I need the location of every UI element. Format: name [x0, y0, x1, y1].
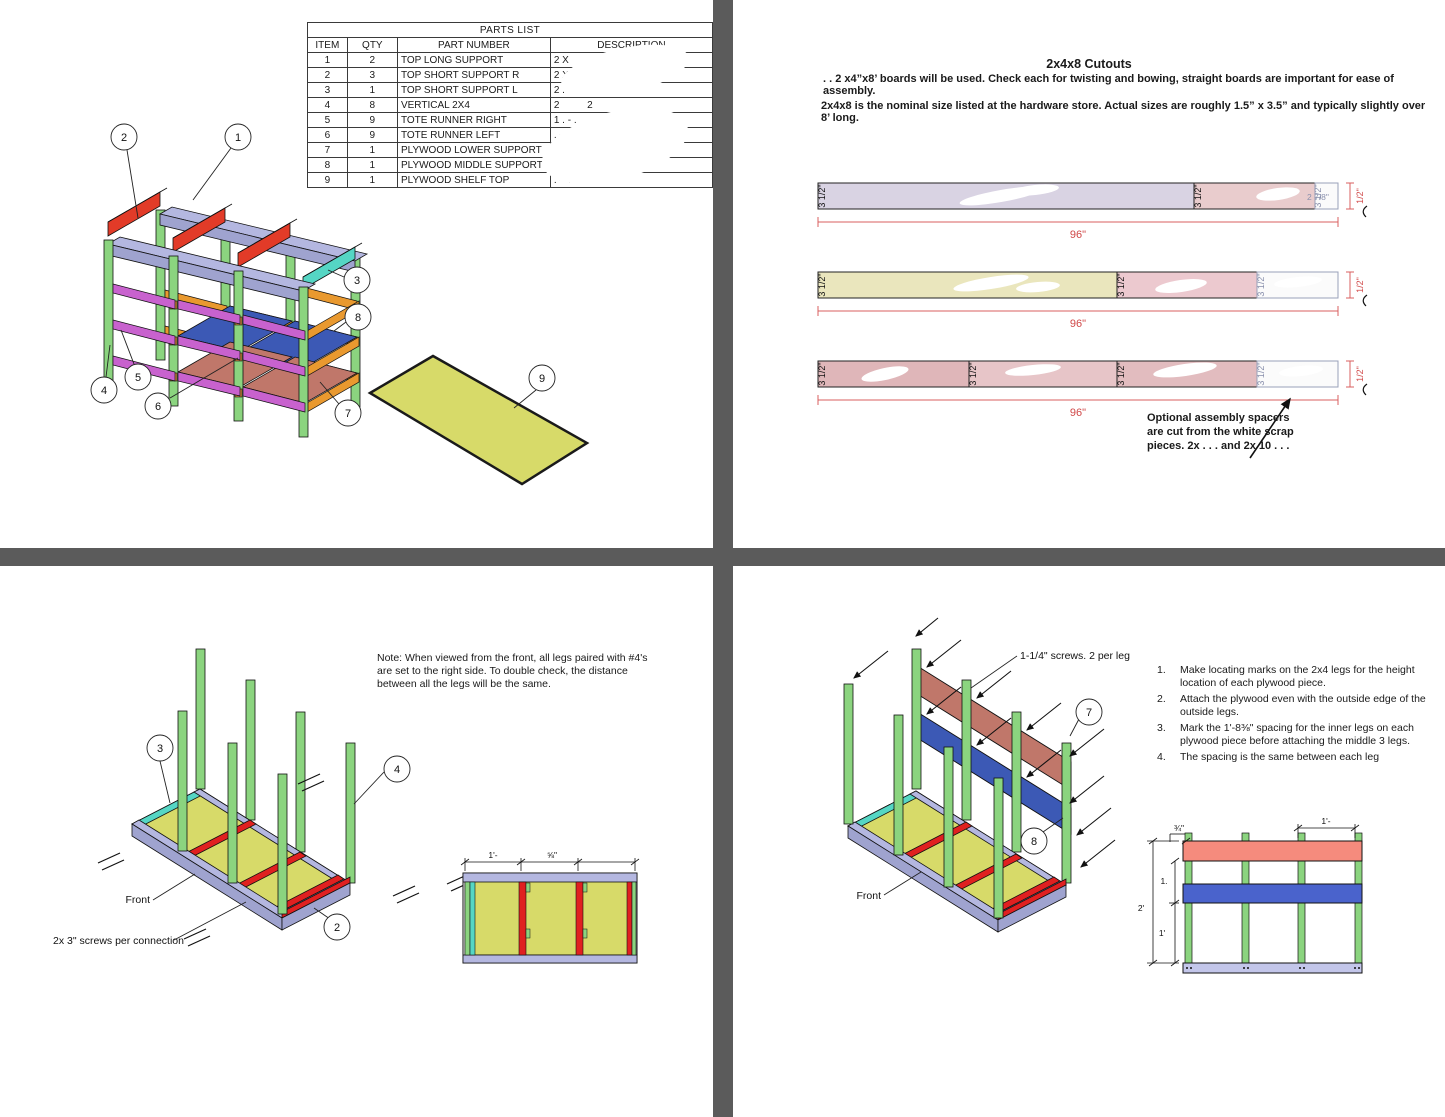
length-label: 96" — [1070, 407, 1086, 419]
svg-text:3: 3 — [354, 275, 360, 287]
svg-text:4: 4 — [101, 385, 107, 397]
col-header-qty: QTY — [347, 38, 397, 53]
base-frame — [132, 789, 350, 930]
svg-text:7: 7 — [1086, 707, 1092, 719]
svg-text:7: 7 — [345, 408, 351, 420]
plywood-front-view: ¾" 2' 1. 1' 1'- — [1138, 816, 1362, 973]
width-label-scrap: 3 1/2" — [1256, 362, 1266, 385]
board-cutout-diagrams: 3 1/2" 3 1/2" 3 1/2" 2 7/8" 96" 1/2" 3 1… — [733, 0, 1445, 548]
screws-label: 2x 3" screws per connection — [53, 935, 184, 947]
svg-text:8: 8 — [355, 312, 361, 324]
spacer-note: Optional assembly spacers are cut from t… — [1147, 411, 1294, 453]
width-label-scrap: 3 1/2" — [1256, 273, 1266, 296]
page-plywood-attachment: 1-1/4" screws. 2 per leg Front 7 8 — [733, 566, 1445, 1117]
col-header-part: PART NUMBER — [397, 38, 550, 53]
svg-text:1: 1 — [235, 132, 241, 144]
callout-2: 2 — [314, 908, 350, 940]
list-item: 4.The spacing is the same between each l… — [1157, 751, 1427, 764]
svg-text:5: 5 — [135, 372, 141, 384]
dim-label-mid1: 1. — [1160, 876, 1167, 886]
parts-list-title: PARTS LIST — [308, 23, 713, 38]
callout-7: 7 — [1070, 699, 1102, 736]
page-base-assembly: Front 2x 3" screws per connection 3 4 2 — [0, 566, 713, 1117]
svg-text:2: 2 — [334, 922, 340, 934]
board-2: 3 1/2" 3 1/2" 3 1/2" 96" 1/2" — [817, 271, 1367, 330]
svg-text:3: 3 — [157, 743, 163, 755]
col-header-item: ITEM — [308, 38, 348, 53]
dim-label: 1'- — [488, 850, 497, 860]
list-item: 3.Mark the 1'-8⅜" spacing for the inner … — [1157, 722, 1427, 748]
front-label: Front — [856, 890, 881, 902]
callout-3: 3 — [147, 735, 173, 803]
length-label: 96" — [1070, 318, 1086, 330]
dim-label-topright: 1'- — [1321, 816, 1330, 826]
width-label: 3 1/2" — [1193, 184, 1203, 207]
list-item: 1.Make locating marks on the 2x4 legs fo… — [1157, 664, 1427, 690]
width-label: 3 1/2" — [968, 362, 978, 385]
page-divider-horizontal — [0, 548, 1445, 566]
width-label: 3 1/2" — [1116, 362, 1126, 385]
list-item: 2.Attach the plywood even with the outsi… — [1157, 693, 1427, 719]
svg-text:9: 9 — [539, 373, 545, 385]
dim-label-mid2: 1' — [1159, 928, 1166, 938]
width-label: 3 1/2" — [1116, 273, 1126, 296]
end-width-label: 1/2" — [1355, 366, 1365, 382]
width-label: 3 1/2" — [817, 362, 827, 385]
instruction-list: 1.Make locating marks on the 2x4 legs fo… — [1157, 664, 1427, 767]
woodworking-plans-document: 1 2 3 4 5 6 7 8 9 PARTS LIST ITEM QTY PA… — [0, 0, 1445, 1117]
width-label: 3 1/2" — [817, 273, 827, 296]
scrap-dimension-label: 2 7/8" — [1307, 192, 1329, 202]
width-label: 3 1/2" — [817, 184, 827, 207]
base-isometric-drawing: Front 2x 3" screws per connection 3 4 2 — [0, 566, 713, 1117]
callout-2: 2 — [111, 124, 138, 218]
dim-label: ⅝" — [547, 850, 557, 860]
dim-label-top: ¾" — [1174, 823, 1184, 833]
assembly-note: Note: When viewed from the front, all le… — [377, 652, 647, 691]
callout-4: 4 — [354, 756, 410, 804]
dim-label-outer: 2' — [1138, 903, 1145, 913]
end-width-label: 1/2" — [1355, 277, 1365, 293]
svg-text:4: 4 — [394, 764, 400, 776]
svg-text:8: 8 — [1031, 836, 1037, 848]
base-front-view: 1'- ⅝" — [461, 850, 639, 963]
page-assembly-overview: 1 2 3 4 5 6 7 8 9 PARTS LIST ITEM QTY PA… — [0, 0, 713, 548]
base-frame — [848, 791, 1066, 932]
board-1: 3 1/2" 3 1/2" 3 1/2" 2 7/8" 96" 1/2" — [817, 183, 1367, 241]
length-label: 96" — [1070, 229, 1086, 241]
callout-9: 9 — [514, 365, 555, 408]
callout-1: 1 — [193, 124, 251, 200]
screws-label: 1-1/4" screws. 2 per leg — [1020, 650, 1130, 662]
svg-text:2: 2 — [121, 132, 127, 144]
svg-text:6: 6 — [155, 401, 161, 413]
end-width-label: 1/2" — [1355, 188, 1365, 204]
page-cutouts: 2x4x8 Cutouts . . 2 x4”x8’ boards will b… — [733, 0, 1445, 548]
table-row: 91PLYWOOD SHELF TOP. - . . — [308, 173, 713, 188]
front-label: Front — [125, 894, 150, 906]
plywood-isometric-drawing: 1-1/4" screws. 2 per leg Front 7 8 — [733, 566, 1445, 1117]
